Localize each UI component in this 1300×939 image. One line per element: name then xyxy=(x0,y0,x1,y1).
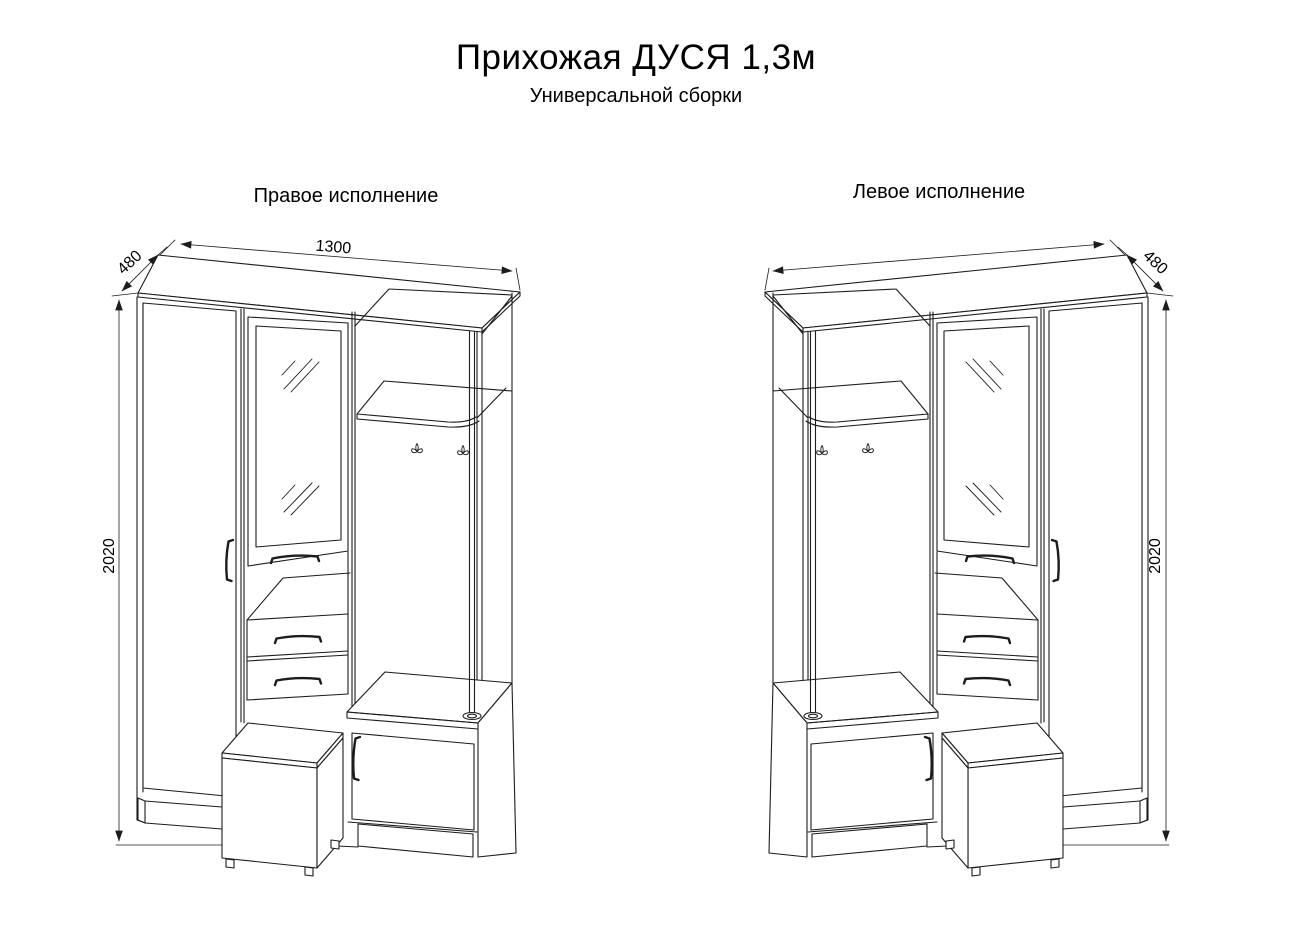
dim-height-label-right-version: 2020 xyxy=(101,538,118,574)
page-canvas: Прихожая ДУСЯ 1,3м Универсальной сборки … xyxy=(0,0,1300,939)
dim-width-label-right-version: 1300 xyxy=(315,238,352,258)
dim-depth-label-left-version: 480 xyxy=(1140,247,1171,278)
dim-height-label-left-version: 2020 xyxy=(1147,538,1164,574)
dim-depth-label-right-version: 480 xyxy=(114,247,145,278)
technical-drawing-svg: 1300 480 2020 480 2020 xyxy=(0,0,1300,939)
furniture-unit-left-version xyxy=(765,240,1173,876)
furniture-unit-right-version xyxy=(112,240,520,876)
